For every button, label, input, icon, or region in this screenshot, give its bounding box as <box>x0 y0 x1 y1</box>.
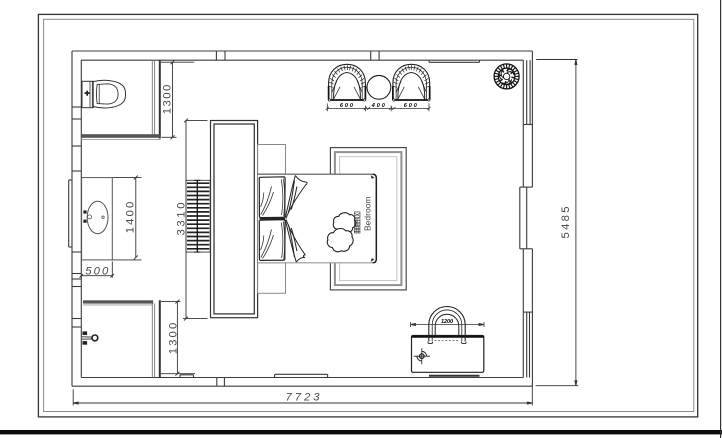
svg-text:600: 600 <box>340 103 353 109</box>
svg-text:400: 400 <box>371 103 385 109</box>
svg-text:500: 500 <box>85 266 109 278</box>
svg-text:1300: 1300 <box>161 85 173 115</box>
svg-text:600: 600 <box>404 103 417 109</box>
svg-text:Bedroom: Bedroom <box>363 197 373 232</box>
svg-text:1200: 1200 <box>441 319 453 325</box>
